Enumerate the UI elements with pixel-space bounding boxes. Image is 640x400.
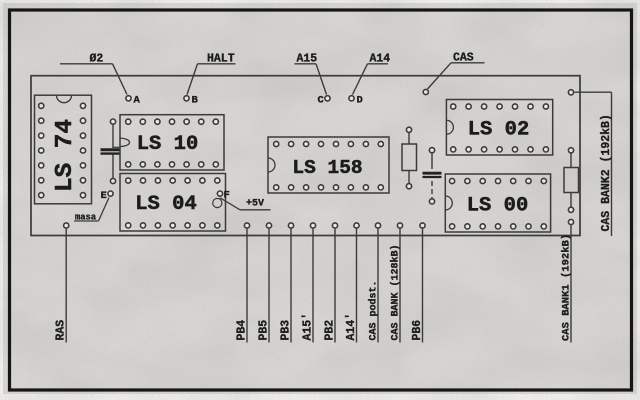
svg-text:PB6: PB6 — [411, 320, 424, 341]
svg-text:F: F — [224, 189, 230, 201]
svg-text:CAS BANK1 (192kB): CAS BANK1 (192kB) — [560, 234, 572, 341]
svg-text:CAS BANK (128kB): CAS BANK (128kB) — [389, 244, 401, 340]
svg-text:B: B — [192, 95, 199, 107]
svg-text:E: E — [101, 190, 107, 202]
svg-text:LS 02: LS 02 — [468, 118, 530, 141]
svg-text:PB2: PB2 — [323, 320, 336, 341]
svg-text:RAS: RAS — [55, 320, 68, 341]
svg-text:CAS podst.: CAS podst. — [367, 280, 379, 340]
svg-text:C: C — [318, 95, 325, 107]
svg-text:LS 74: LS 74 — [52, 119, 79, 192]
svg-text:A15': A15' — [301, 313, 314, 341]
svg-text:A14': A14' — [345, 313, 358, 341]
svg-text:A: A — [134, 95, 141, 107]
svg-text:PB5: PB5 — [257, 320, 270, 341]
svg-text:LS 00: LS 00 — [467, 194, 529, 217]
svg-text:LS 10: LS 10 — [137, 133, 199, 156]
svg-text:LS 158: LS 158 — [292, 157, 362, 179]
svg-text:+5V: +5V — [246, 199, 264, 210]
svg-text:LS 04: LS 04 — [135, 193, 197, 216]
svg-text:PB4: PB4 — [235, 320, 248, 341]
svg-text:D: D — [357, 95, 363, 107]
svg-text:CAS BANK2 (192kB): CAS BANK2 (192kB) — [600, 114, 613, 231]
svg-text:PB3: PB3 — [279, 320, 292, 341]
